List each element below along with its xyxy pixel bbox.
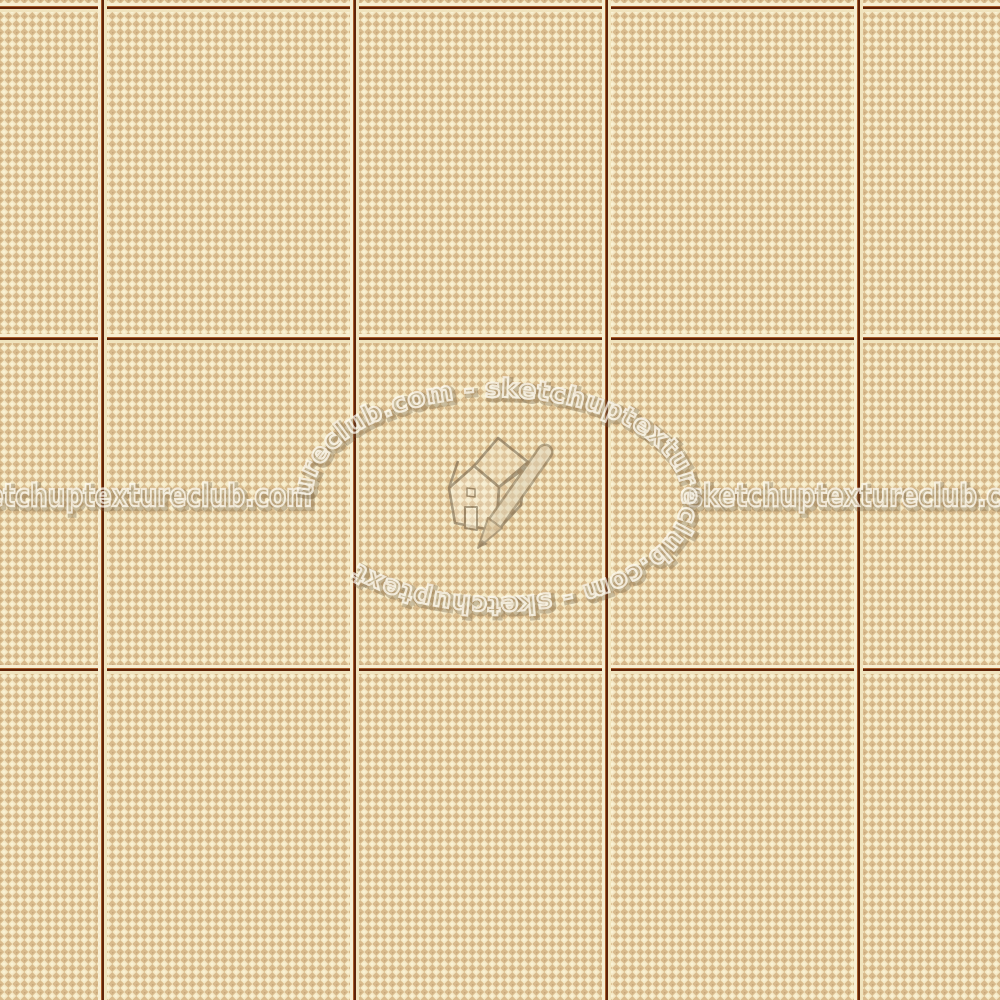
watermark-text-left: sketchuptextureclub.com sketchuptexturec… bbox=[0, 478, 315, 517]
watermark-text-right: sketchuptextureclub.com sketchuptexturec… bbox=[688, 478, 1000, 517]
watermark-text-right-front: sketchuptextureclub.com bbox=[688, 478, 1000, 514]
watermark-text-left-front: sketchuptextureclub.com bbox=[0, 478, 312, 514]
sketchup-house-pencil-logo bbox=[449, 438, 545, 548]
logo-door bbox=[465, 507, 477, 530]
watermark-overlay: sketchuptextureclub.com sketchuptexturec… bbox=[0, 0, 1000, 1000]
logo-window bbox=[467, 488, 475, 497]
tile-texture-image: sketchuptextureclub.com sketchuptexturec… bbox=[0, 0, 1000, 1000]
